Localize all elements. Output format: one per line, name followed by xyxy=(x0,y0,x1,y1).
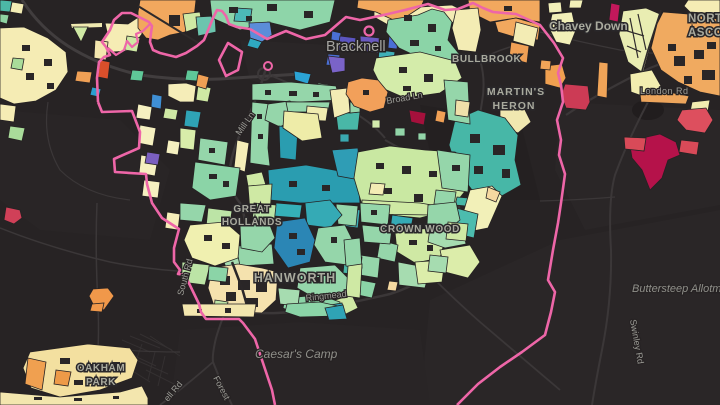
svg-text:Buttersteep Allotm: Buttersteep Allotm xyxy=(632,283,720,295)
svg-text:NORTH: NORTH xyxy=(688,13,720,25)
svg-text:PARK: PARK xyxy=(86,377,116,388)
svg-text:HANWORTH: HANWORTH xyxy=(254,271,336,285)
svg-text:ASCOT: ASCOT xyxy=(688,27,720,39)
svg-text:CROWN WOOD: CROWN WOOD xyxy=(380,224,460,235)
svg-text:HOLLANDS: HOLLANDS xyxy=(222,217,282,228)
svg-text:GREAT: GREAT xyxy=(233,204,270,215)
svg-text:London Rd: London Rd xyxy=(640,86,689,96)
svg-text:Caesar's Camp: Caesar's Camp xyxy=(255,347,338,361)
svg-text:OAKHAM: OAKHAM xyxy=(77,363,126,374)
svg-text:Bracknell: Bracknell xyxy=(326,39,386,55)
svg-text:Chavey Down: Chavey Down xyxy=(549,19,628,33)
svg-text:HERON: HERON xyxy=(493,100,536,112)
svg-text:MARTIN'S: MARTIN'S xyxy=(487,86,545,98)
svg-text:BULLBROOK: BULLBROOK xyxy=(452,54,521,65)
